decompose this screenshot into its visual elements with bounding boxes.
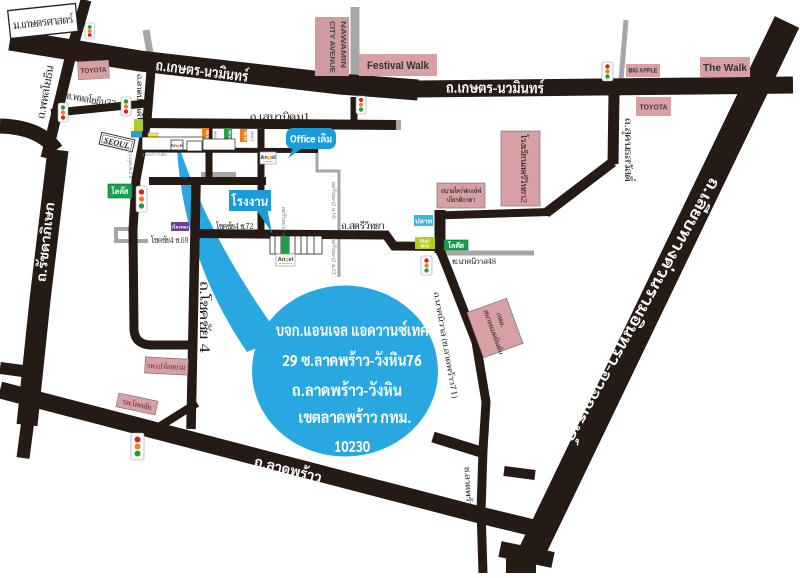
svg-text:ลาดพร้าววังหิน: ลาดพร้าววังหิน xyxy=(142,152,167,159)
svg-text:Angel: Angel xyxy=(171,143,184,148)
svg-text:ซ.นาคนิวาส48: ซ.นาคนิวาส48 xyxy=(452,256,496,269)
svg-text:โลตัส: โลตัส xyxy=(111,185,129,196)
svg-text:TOYOTA: TOYOTA xyxy=(640,105,668,112)
svg-text:29 ซ.ลาดพร้าว-วังหิน76: 29 ซ.ลาดพร้าว-วังหิน76 xyxy=(282,349,422,370)
svg-text:ตลาด: ตลาด xyxy=(243,130,248,140)
svg-text:โรงงาน: โรงงาน xyxy=(231,192,268,210)
svg-text:ถ.โชคชัย 4: ถ.โชคชัย 4 xyxy=(192,281,215,353)
svg-text:ถ.เกษตร-นวมินทร์: ถ.เกษตร-นวมินทร์ xyxy=(446,77,545,98)
svg-text:CITY AVENUE: CITY AVENUE xyxy=(328,21,337,73)
svg-text:Angel: Angel xyxy=(278,257,294,263)
svg-text:ถ.ลาดปลาเค้า: ถ.ลาดปลาเค้า xyxy=(132,73,145,120)
svg-text:Office เดิม: Office เดิม xyxy=(290,133,332,146)
svg-text:ปลาท: ปลาท xyxy=(415,217,432,226)
svg-text:NAWAMIN: NAWAMIN xyxy=(339,21,348,68)
svg-text:Mini: Mini xyxy=(421,244,430,249)
svg-text:ตลาด: ตลาด xyxy=(205,129,210,139)
svg-text:ถ.สุคนธสวัสดิ์: ถ.สุคนธสวัสดิ์ xyxy=(619,118,637,182)
svg-text:Angel: Angel xyxy=(260,155,276,161)
svg-text:สตรีวิทยา2 ซ.23: สตรีวิทยา2 ซ.23 xyxy=(329,237,338,274)
svg-text:ซอย4: ซอย4 xyxy=(248,131,255,142)
svg-text:ตลาด: ตลาด xyxy=(228,129,233,139)
svg-text:ถ.ลาดพร้าว-วังหิน: ถ.ลาดพร้าว-วังหิน xyxy=(292,379,402,400)
svg-text:TOYOTA: TOYOTA xyxy=(80,67,106,75)
svg-text:เกียรติธาดา: เกียรติธาดา xyxy=(447,194,475,206)
svg-text:โชคชัย4 ซ.72: โชคชัย4 ซ.72 xyxy=(216,219,254,234)
svg-text:สตรีวิทยา2 ซ.10: สตรีวิทยา2 ซ.10 xyxy=(329,181,338,218)
svg-text:10230: 10230 xyxy=(334,435,371,456)
svg-text:เวียงทอง: เวียงทอง xyxy=(172,224,189,231)
svg-text:ถ.เสนานิคม1: ถ.เสนานิคม1 xyxy=(250,108,310,127)
svg-text:ถ.สตรีวิทยา: ถ.สตรีวิทยา xyxy=(342,218,385,235)
svg-text:บจก.แอนเจล แอดวานซ์เทค: บจก.แอนเจล แอดวานซ์เทค xyxy=(276,319,429,340)
svg-text:โชคชัย4 ซ.69: โชคชัย4 ซ.69 xyxy=(151,233,189,248)
svg-text:รพ.เปาโลสยาม: รพ.เปาโลสยาม xyxy=(147,360,186,375)
svg-text:เขตลาดพร้าว กทม.: เขตลาดพร้าว กทม. xyxy=(299,406,412,427)
svg-text:โลตัส: โลตัส xyxy=(447,241,464,250)
svg-text:BIG APPLE: BIG APPLE xyxy=(629,69,658,75)
svg-text:โรงเรียนสตรีวิทยา2: โรงเรียนสตรีวิทยา2 xyxy=(516,134,531,203)
svg-text:The Walk: The Walk xyxy=(703,62,747,74)
svg-text:Festival Walk: Festival Walk xyxy=(367,60,430,72)
